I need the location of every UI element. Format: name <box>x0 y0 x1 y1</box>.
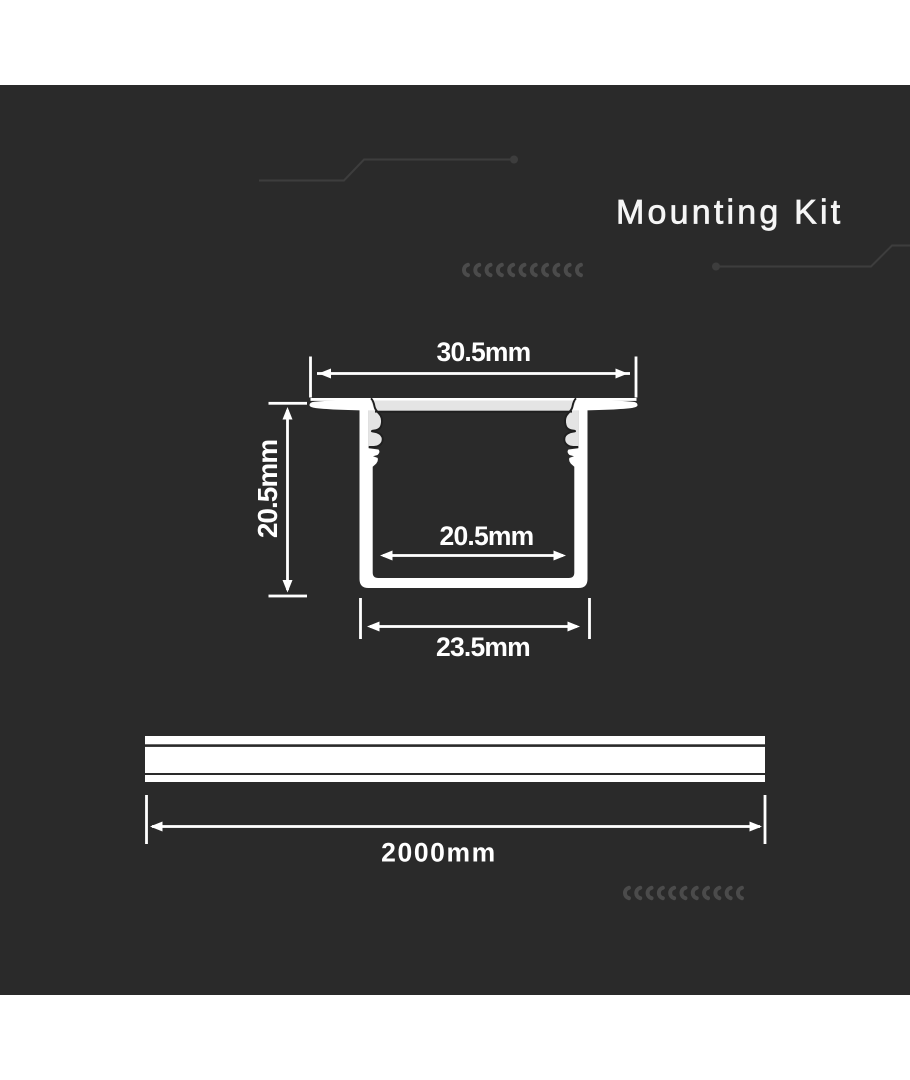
svg-text:Mounting Kit: Mounting Kit <box>616 194 843 232</box>
svg-text:20.5mm: 20.5mm <box>252 440 283 538</box>
svg-text:20.5mm: 20.5mm <box>440 521 534 551</box>
svg-text:2000mm: 2000mm <box>381 838 497 868</box>
svg-text:23.5mm: 23.5mm <box>436 632 530 662</box>
svg-text:30.5mm: 30.5mm <box>437 337 531 367</box>
